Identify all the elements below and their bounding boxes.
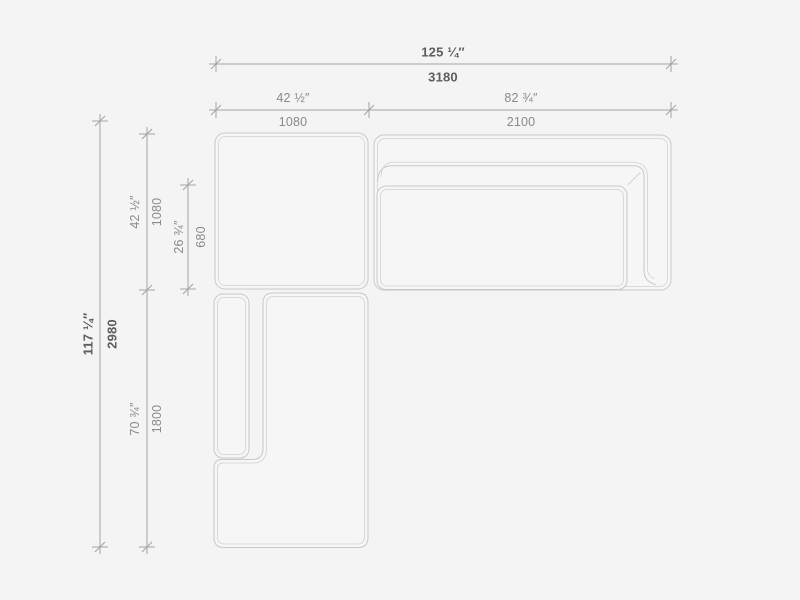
seat-depth-imperial-label: 26 ¾″ (173, 220, 186, 253)
sofa-module-outline (374, 135, 671, 290)
chaise-module-outline (214, 293, 368, 548)
sofa-module-width-metric-label: 2100 (507, 116, 536, 129)
sofa-plan-drawing: 125 ¼″ 3180 42 ½″ 1080 82 ¾″ 2100 117 ¼″… (0, 0, 800, 600)
overall-depth-metric-label: 2980 (106, 319, 119, 349)
dimension-annotations (92, 56, 678, 554)
chaise-armrest-outer (214, 294, 249, 458)
overall-width-metric-label: 3180 (428, 71, 458, 84)
sofa-plan-svg (0, 0, 800, 600)
seat-depth-metric-label: 680 (195, 226, 208, 247)
chaise-module-length-metric-label: 1800 (151, 405, 164, 434)
corner-module-width-metric-label: 1080 (279, 116, 308, 129)
sofa-outlines (214, 133, 671, 548)
corner-module-depth-imperial-label: 42 ½″ (129, 195, 142, 228)
corner-module-outline (215, 133, 368, 289)
sofa-module-width-imperial-label: 82 ¾″ (504, 92, 537, 105)
overall-depth-imperial-label: 117 ¼″ (82, 313, 95, 356)
corner-module-outer (215, 133, 368, 289)
chaise-module-length-imperial-label: 70 ¾″ (129, 402, 142, 435)
overall-width-imperial-label: 125 ¼″ (421, 46, 465, 59)
sofa-seat-cushion-outer (377, 186, 627, 290)
corner-module-depth-metric-label: 1080 (151, 198, 164, 227)
corner-module-width-imperial-label: 42 ½″ (276, 92, 309, 105)
